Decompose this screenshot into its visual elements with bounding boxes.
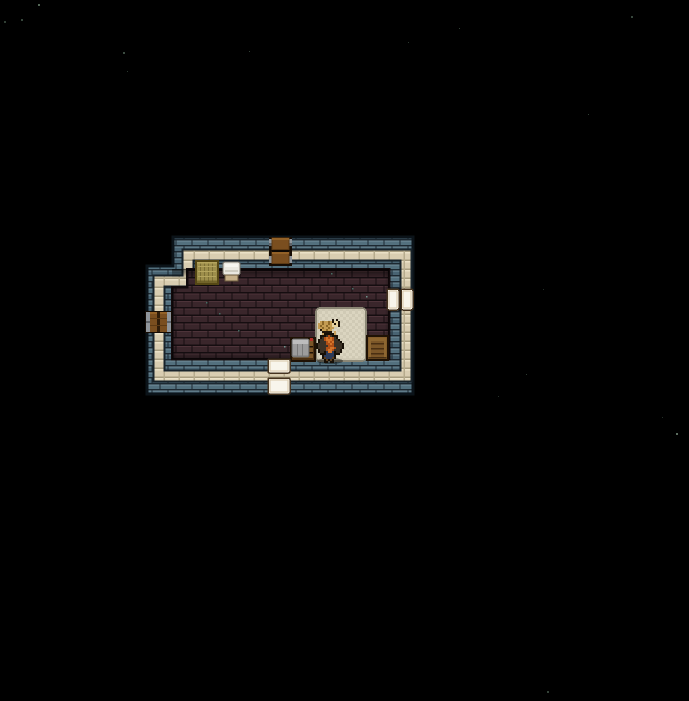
floor-speck: [366, 296, 368, 298]
floor-shadow-left: [172, 287, 177, 359]
floor-speck: [238, 330, 240, 332]
game-viewport[interactable]: [0, 0, 689, 701]
star: [408, 42, 409, 43]
wall-barrel[interactable]: [145, 311, 172, 333]
star: [676, 433, 678, 435]
star: [498, 396, 499, 397]
star: [249, 51, 250, 52]
star: [662, 417, 663, 418]
floor-speck: [219, 313, 221, 315]
hay-bale[interactable]: [196, 261, 218, 286]
star: [526, 374, 527, 375]
top-door[interactable]: [269, 237, 292, 266]
star: [631, 16, 633, 18]
storage-crate[interactable]: [367, 336, 388, 360]
right-double-door[interactable]: [387, 288, 413, 311]
chair[interactable]: [223, 262, 240, 281]
shirt-crate[interactable]: [291, 338, 315, 361]
star: [547, 691, 549, 693]
star: [38, 4, 40, 6]
floor-speck: [352, 288, 354, 290]
room: [145, 237, 413, 394]
floor-speck: [284, 346, 286, 348]
game-screen: [0, 0, 689, 701]
star: [543, 289, 544, 290]
star: [588, 114, 589, 115]
floor-speck: [206, 302, 208, 304]
star: [123, 52, 125, 54]
star: [459, 28, 460, 29]
star: [127, 71, 128, 72]
star: [21, 19, 23, 21]
floor-speck: [331, 273, 333, 275]
star: [4, 21, 6, 23]
